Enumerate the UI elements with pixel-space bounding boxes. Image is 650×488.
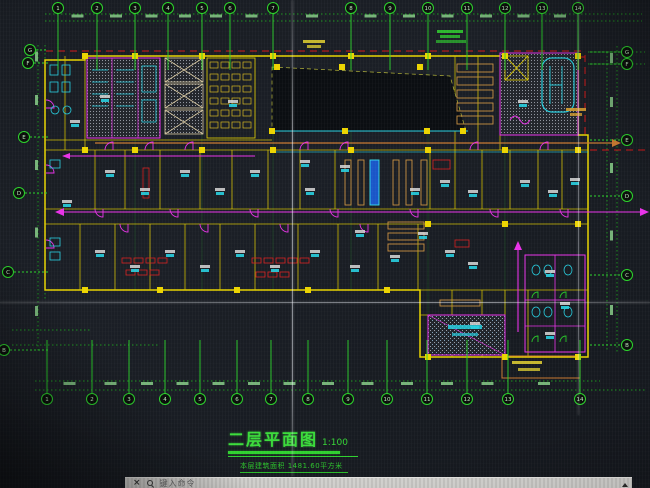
axis-bubble-label: 14 bbox=[577, 397, 584, 403]
cad-canvas[interactable]: 12345678910111213141234567891011121314GF… bbox=[0, 0, 650, 477]
axis-bubble-label: 2 bbox=[95, 6, 99, 12]
axis-bubble-label: C bbox=[625, 273, 629, 279]
axis-bubble-label: 13 bbox=[539, 6, 546, 12]
axis-bubble-label: 10 bbox=[425, 6, 432, 12]
axis-bubble-label: 9 bbox=[388, 6, 392, 12]
axis-bubble-label: 6 bbox=[235, 397, 239, 403]
axis-bubble-label: 8 bbox=[349, 6, 353, 12]
axis-bubble-label: E bbox=[22, 135, 26, 141]
axis-bubble-label: 12 bbox=[502, 6, 509, 12]
axis-bubble-label: D bbox=[17, 191, 21, 197]
axis-bubble-label: 12 bbox=[464, 397, 471, 403]
axis-bubble-label: B bbox=[2, 348, 6, 354]
search-icon[interactable] bbox=[147, 480, 154, 487]
axis-bubble-label: 1 bbox=[45, 397, 49, 403]
title-underline-thin bbox=[228, 456, 358, 457]
axis-bubble-label: B bbox=[625, 343, 629, 349]
axis-bubble-label: 5 bbox=[200, 6, 204, 12]
axis-bubble-label: 6 bbox=[228, 6, 232, 12]
top-right-block bbox=[500, 53, 578, 135]
drawing-scale: 1:100 bbox=[322, 438, 348, 448]
command-caret-icon bbox=[622, 483, 628, 487]
axis-bubble-label: 3 bbox=[133, 6, 137, 12]
axis-bubble-label: G bbox=[625, 50, 629, 56]
seating-room bbox=[207, 58, 255, 138]
axis-bubble-label: 10 bbox=[384, 397, 391, 403]
axis-bubble-label: F bbox=[625, 62, 628, 68]
drawing-title-block: 二层平面图 1:100 本层建筑面积 1481.60平方米 bbox=[228, 426, 358, 473]
axis-bubble-label: 13 bbox=[505, 397, 512, 403]
screen-photo: 12345678910111213141234567891011121314GF… bbox=[0, 0, 650, 488]
left-wing-fixtures bbox=[50, 65, 71, 260]
axis-bubble-label: 3 bbox=[127, 397, 131, 403]
axis-bubble-label: G bbox=[28, 48, 32, 54]
command-bar[interactable]: × 键入命令 bbox=[125, 477, 632, 488]
axis-bubble-label: 11 bbox=[464, 6, 471, 12]
axis-bubble-label: 4 bbox=[163, 397, 167, 403]
bottom-right-hatch bbox=[428, 315, 505, 355]
axis-bubble-label: C bbox=[6, 270, 10, 276]
axis-bubble-label: 9 bbox=[346, 397, 350, 403]
axis-bubble-label: 8 bbox=[306, 397, 310, 403]
area-note: 本层建筑面积 1481.60平方米 bbox=[240, 461, 358, 471]
title-underline-thick bbox=[228, 451, 340, 454]
axis-bubble-label: 11 bbox=[424, 397, 431, 403]
axis-bubble-label: F bbox=[26, 61, 29, 67]
close-icon[interactable]: × bbox=[133, 479, 141, 488]
toilet-block bbox=[525, 255, 585, 352]
axis-bubble-label: D bbox=[625, 194, 629, 200]
axis-bubble-label: 1 bbox=[56, 6, 60, 12]
lecture-hall-hatch bbox=[87, 58, 160, 138]
axis-bubble-label: 7 bbox=[271, 6, 275, 12]
axis-bubble-label: 7 bbox=[269, 397, 273, 403]
axis-bubble-label: 2 bbox=[90, 397, 94, 403]
axis-bubble-label: 14 bbox=[575, 6, 582, 12]
staircase-block bbox=[165, 58, 203, 134]
drawing-title: 二层平面图 bbox=[228, 426, 318, 450]
red-furniture bbox=[122, 160, 469, 277]
command-input[interactable]: 键入命令 bbox=[160, 479, 196, 488]
area-note-underline bbox=[240, 472, 348, 473]
axis-bubble-label: 4 bbox=[166, 6, 170, 12]
axis-bubble-label: 5 bbox=[198, 397, 202, 403]
axis-bubble-label: E bbox=[625, 138, 629, 144]
